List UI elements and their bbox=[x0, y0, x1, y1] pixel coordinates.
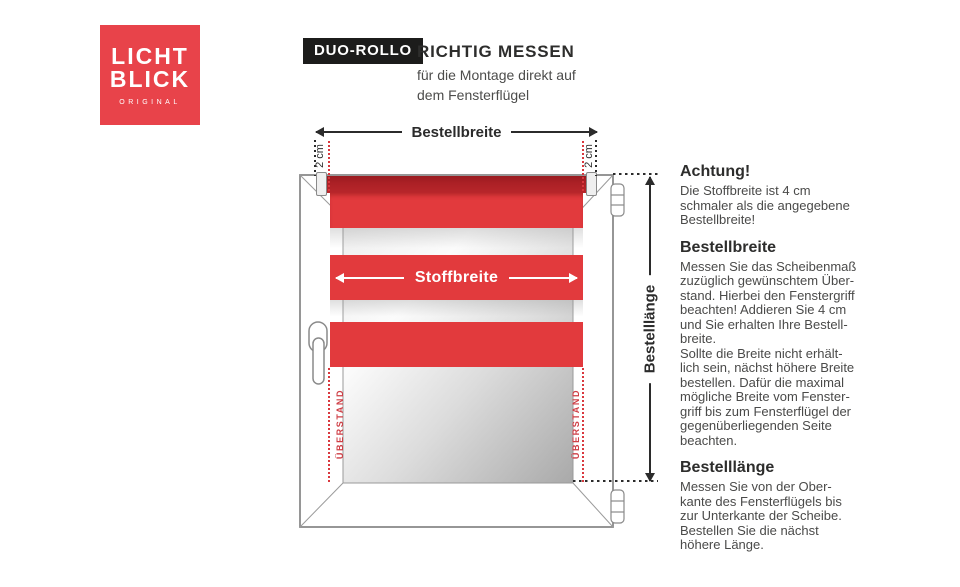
offset-label-left: 2 cm bbox=[314, 136, 328, 176]
offset-label-right: 2 cm bbox=[583, 136, 597, 176]
stoffbreite-arrow-right bbox=[509, 277, 577, 279]
bestelllaenge-label: Bestelllänge bbox=[642, 275, 659, 383]
page: { "brand": { "line1": "LICHT", "line2": … bbox=[0, 0, 960, 587]
blind-sheer-stripe-2 bbox=[330, 300, 583, 322]
bestellbreite-label: Bestellbreite bbox=[411, 124, 501, 141]
info-column: Achtung! Die Stoffbreite ist 4 cm schmal… bbox=[680, 162, 905, 563]
blind-fabric-stripe-3 bbox=[330, 322, 583, 367]
overhang-label-left: ÜBERSTAND bbox=[335, 369, 347, 479]
dotted-line-fabric-left-top bbox=[328, 141, 330, 193]
dotted-line-fabric-left-bottom bbox=[328, 368, 330, 483]
info-body-bestellbreite: Messen Sie das Scheibenmaß zuzüglich gew… bbox=[680, 260, 905, 449]
overhang-label-right: ÜBERSTAND bbox=[571, 369, 583, 479]
bestelllaenge-arrow: Bestelllänge bbox=[641, 177, 657, 481]
blind-sheer-stripe-1 bbox=[330, 228, 583, 255]
blind-fabric-stripe-2: Stoffbreite bbox=[330, 255, 583, 300]
hinge-bottom bbox=[611, 490, 624, 523]
bestellbreite-arrow-right bbox=[511, 131, 597, 133]
stoffbreite-arrow-left bbox=[336, 277, 404, 279]
hinge-top bbox=[611, 184, 624, 216]
blind-cassette bbox=[327, 176, 586, 193]
dotted-line-length-top bbox=[613, 173, 658, 175]
info-body-achtung: Die Stoffbreite ist 4 cm schmaler als di… bbox=[680, 184, 905, 228]
bestellbreite-arrow-left bbox=[316, 131, 402, 133]
blind-fabric-stripe-1 bbox=[330, 193, 583, 228]
info-heading-bestelllaenge: Bestelllänge bbox=[680, 458, 905, 477]
info-heading-achtung: Achtung! bbox=[680, 162, 905, 181]
info-heading-bestellbreite: Bestellbreite bbox=[680, 238, 905, 257]
info-body-bestelllaenge: Messen Sie von der Ober- kante des Fenst… bbox=[680, 480, 905, 553]
stoffbreite-label: Stoffbreite bbox=[415, 269, 498, 287]
stoffbreite-arrow: Stoffbreite bbox=[330, 269, 583, 287]
bestellbreite-arrow: Bestellbreite bbox=[316, 124, 597, 140]
